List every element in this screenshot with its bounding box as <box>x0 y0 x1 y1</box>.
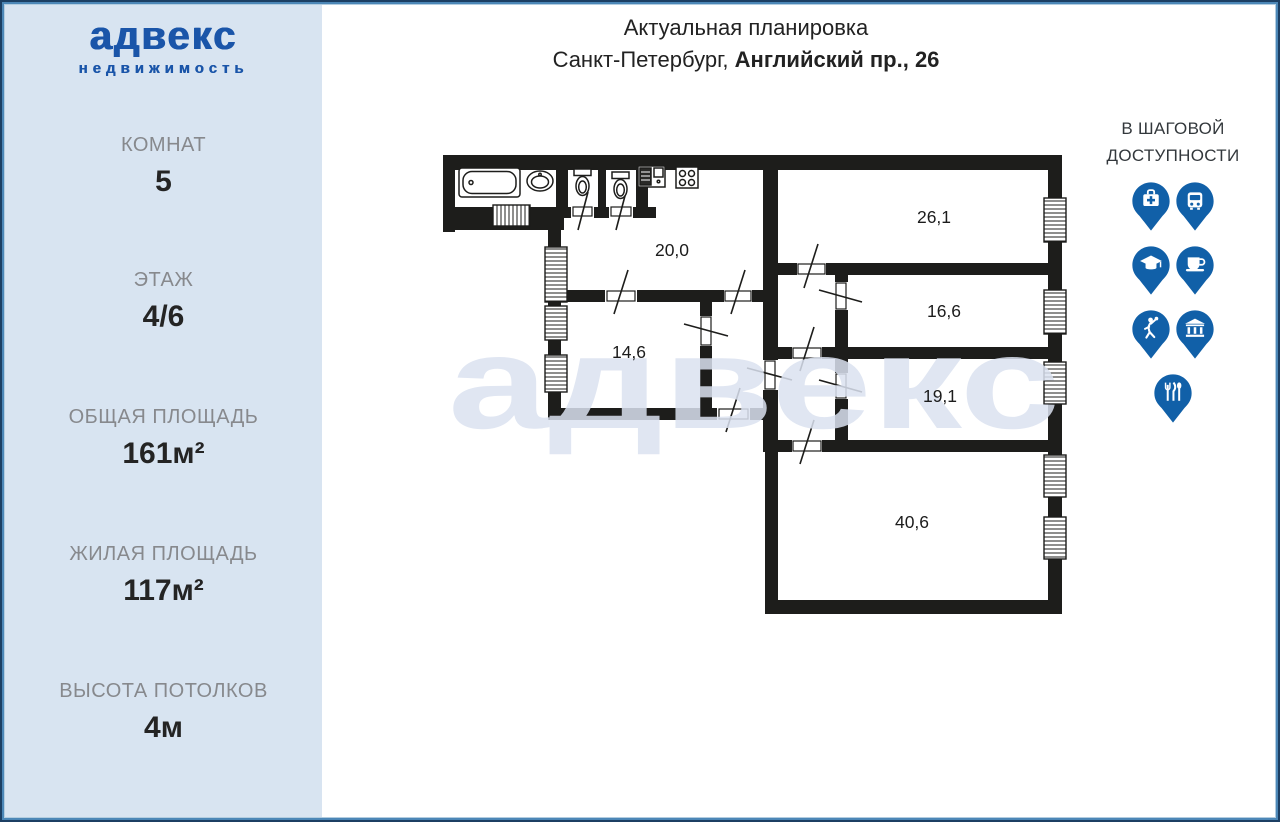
walkability-panel: В ШАГОВОЙ ДОСТУПНОСТИ <box>1090 115 1256 437</box>
pin-row <box>1090 245 1256 296</box>
title-city: Санкт-Петербург, <box>553 47 735 72</box>
room-label: 26,1 <box>917 207 951 227</box>
sidebar: адвекс недвижимость КОМНАТ 5 ЭТАЖ 4/6 ОБ… <box>5 5 322 817</box>
floor-plan: адвекс 20,0 26,1 16,6 19,1 40,6 14,6 <box>440 150 1070 620</box>
stat-label: КОМНАТ <box>5 133 322 157</box>
bank-icon <box>1175 309 1215 360</box>
stat-total-area: ОБЩАЯ ПЛОЩАДЬ 161м² <box>5 405 322 471</box>
logo-wordmark: адвекс <box>5 15 322 57</box>
stat-label: ВЫСОТА ПОТОЛКОВ <box>5 679 322 703</box>
room-label: 16,6 <box>927 301 961 321</box>
bath-sink-icon <box>527 171 553 191</box>
education-icon <box>1131 245 1171 296</box>
walkability-heading-line2: ДОСТУПНОСТИ <box>1090 142 1256 169</box>
bathtub-icon <box>459 168 520 197</box>
title-line1: Актуальная планировка <box>330 12 1162 44</box>
stat-value: 161м² <box>5 437 322 471</box>
agency-logo: адвекс недвижимость <box>5 15 322 77</box>
stat-ceiling-height: ВЫСОТА ПОТОЛКОВ 4м <box>5 679 322 745</box>
pin-row <box>1090 181 1256 232</box>
medical-icon <box>1131 181 1171 232</box>
stat-rooms: КОМНАТ 5 <box>5 133 322 199</box>
bus-icon <box>1175 181 1215 232</box>
page-title: Актуальная планировка Санкт-Петербург, А… <box>330 12 1162 76</box>
walkability-heading-line1: В ШАГОВОЙ <box>1090 115 1256 142</box>
title-address: Английский пр., 26 <box>735 47 940 72</box>
stat-label: ЭТАЖ <box>5 268 322 292</box>
sport-icon <box>1131 309 1171 360</box>
stat-value: 4м <box>5 711 322 745</box>
cafe-icon <box>1175 245 1215 296</box>
room-label: 40,6 <box>895 512 929 532</box>
stat-value: 4/6 <box>5 300 322 334</box>
walkability-heading: В ШАГОВОЙ ДОСТУПНОСТИ <box>1090 115 1256 169</box>
room-label: 19,1 <box>923 386 957 406</box>
stat-value: 5 <box>5 165 322 199</box>
watermark: адвекс <box>448 309 1060 456</box>
stove-icon <box>676 167 698 188</box>
stat-label: ОБЩАЯ ПЛОЩАДЬ <box>5 405 322 429</box>
stat-living-area: ЖИЛАЯ ПЛОЩАДЬ 117м² <box>5 542 322 608</box>
stat-value: 117м² <box>5 574 322 608</box>
pin-row <box>1090 309 1256 360</box>
amenity-pins <box>1090 181 1256 424</box>
toilet-icon <box>612 172 629 199</box>
toilet-icon <box>574 169 591 196</box>
restaurant-icon <box>1153 373 1193 424</box>
title-line2: Санкт-Петербург, Английский пр., 26 <box>330 44 1162 76</box>
room-label: 14,6 <box>612 342 646 362</box>
room-label: 20,0 <box>655 240 689 260</box>
logo-subtitle: недвижимость <box>5 60 322 77</box>
stat-label: ЖИЛАЯ ПЛОЩАДЬ <box>5 542 322 566</box>
kitchen-sink-icon <box>638 166 665 187</box>
floorplan-flyer: { "logo": { "name": "адвекс", "subtitle"… <box>0 0 1280 822</box>
fixtures <box>459 166 698 199</box>
stat-floor: ЭТАЖ 4/6 <box>5 268 322 334</box>
pin-row <box>1090 373 1256 424</box>
